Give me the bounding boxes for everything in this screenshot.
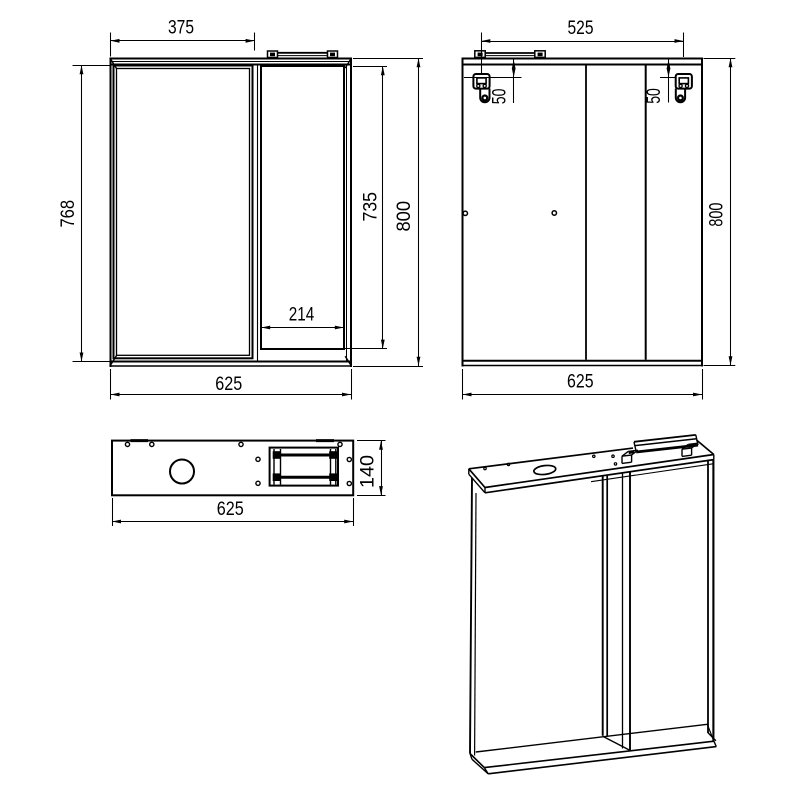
svg-text:625: 625 (217, 499, 244, 520)
svg-text:768: 768 (58, 200, 79, 228)
svg-text:140: 140 (358, 455, 379, 488)
svg-text:625: 625 (567, 372, 594, 393)
svg-text:375: 375 (168, 18, 194, 39)
svg-text:625: 625 (215, 374, 242, 395)
svg-text:50: 50 (644, 88, 665, 104)
svg-text:525: 525 (568, 18, 594, 39)
svg-text:735: 735 (361, 192, 382, 222)
svg-text:50: 50 (489, 89, 510, 105)
svg-text:800: 800 (706, 203, 727, 227)
svg-text:800: 800 (394, 201, 415, 232)
svg-text:214: 214 (289, 305, 315, 326)
